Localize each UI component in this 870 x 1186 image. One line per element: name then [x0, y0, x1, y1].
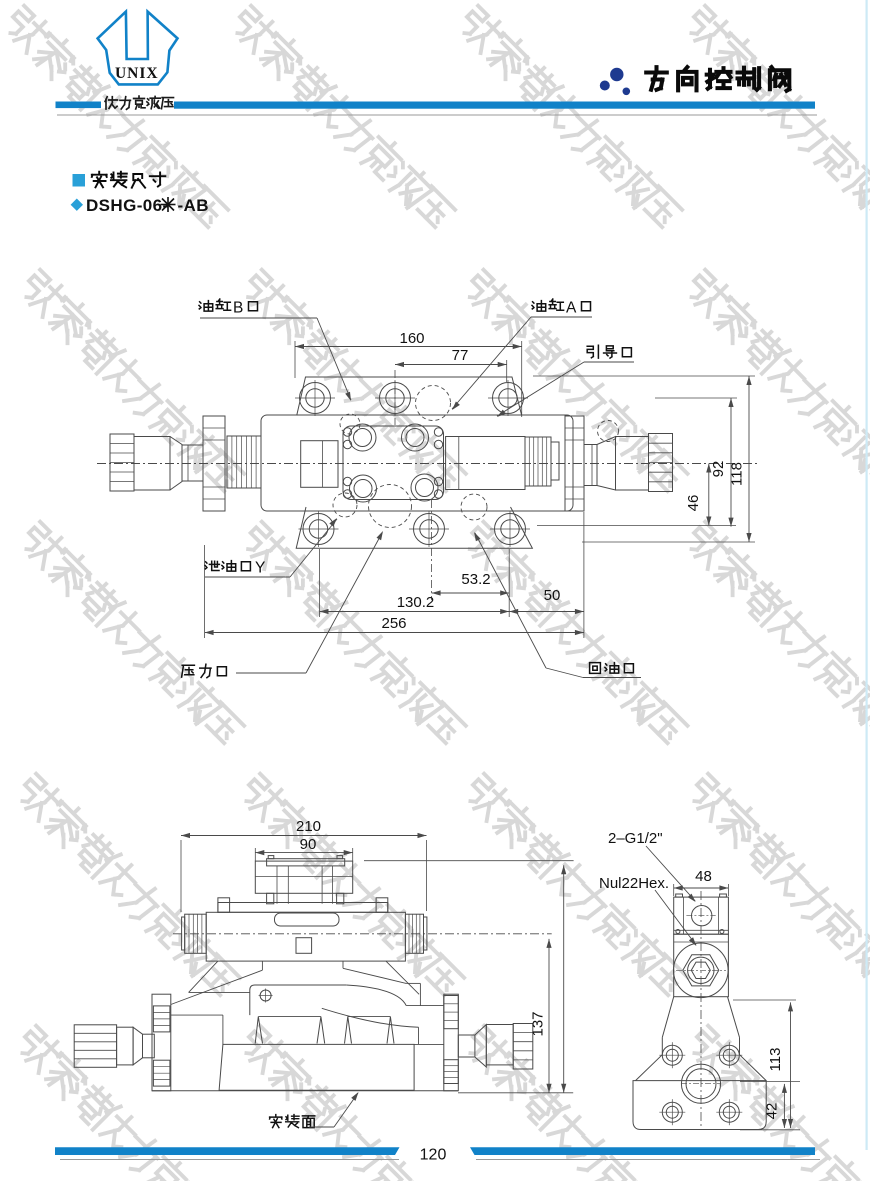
svg-text:Y: Y	[255, 560, 265, 577]
svg-text:120: 120	[420, 1147, 447, 1164]
svg-text:160: 160	[399, 330, 424, 347]
svg-text:48: 48	[695, 868, 712, 885]
svg-text:B: B	[233, 300, 243, 317]
svg-text:53.2: 53.2	[461, 571, 490, 588]
svg-text:UNIX: UNIX	[115, 65, 159, 82]
svg-text:113: 113	[767, 1048, 784, 1072]
svg-text:77: 77	[452, 347, 469, 364]
svg-text:256: 256	[381, 615, 406, 632]
svg-text:42: 42	[764, 1103, 781, 1120]
svg-text:46: 46	[685, 495, 702, 512]
svg-text:137: 137	[530, 1011, 547, 1036]
svg-text:A: A	[566, 300, 577, 317]
svg-text:210: 210	[296, 818, 321, 835]
svg-text:92: 92	[710, 461, 727, 478]
svg-text:118: 118	[729, 462, 746, 486]
svg-text:2–G1/2": 2–G1/2"	[608, 830, 663, 847]
svg-text:130.2: 130.2	[397, 594, 435, 611]
svg-text:DSHG-06-: DSHG-06-	[86, 196, 169, 215]
svg-text:-AB: -AB	[178, 196, 209, 215]
svg-text:50: 50	[544, 587, 561, 604]
svg-text:Nul22Hex.: Nul22Hex.	[599, 875, 669, 892]
svg-text:90: 90	[300, 836, 317, 853]
